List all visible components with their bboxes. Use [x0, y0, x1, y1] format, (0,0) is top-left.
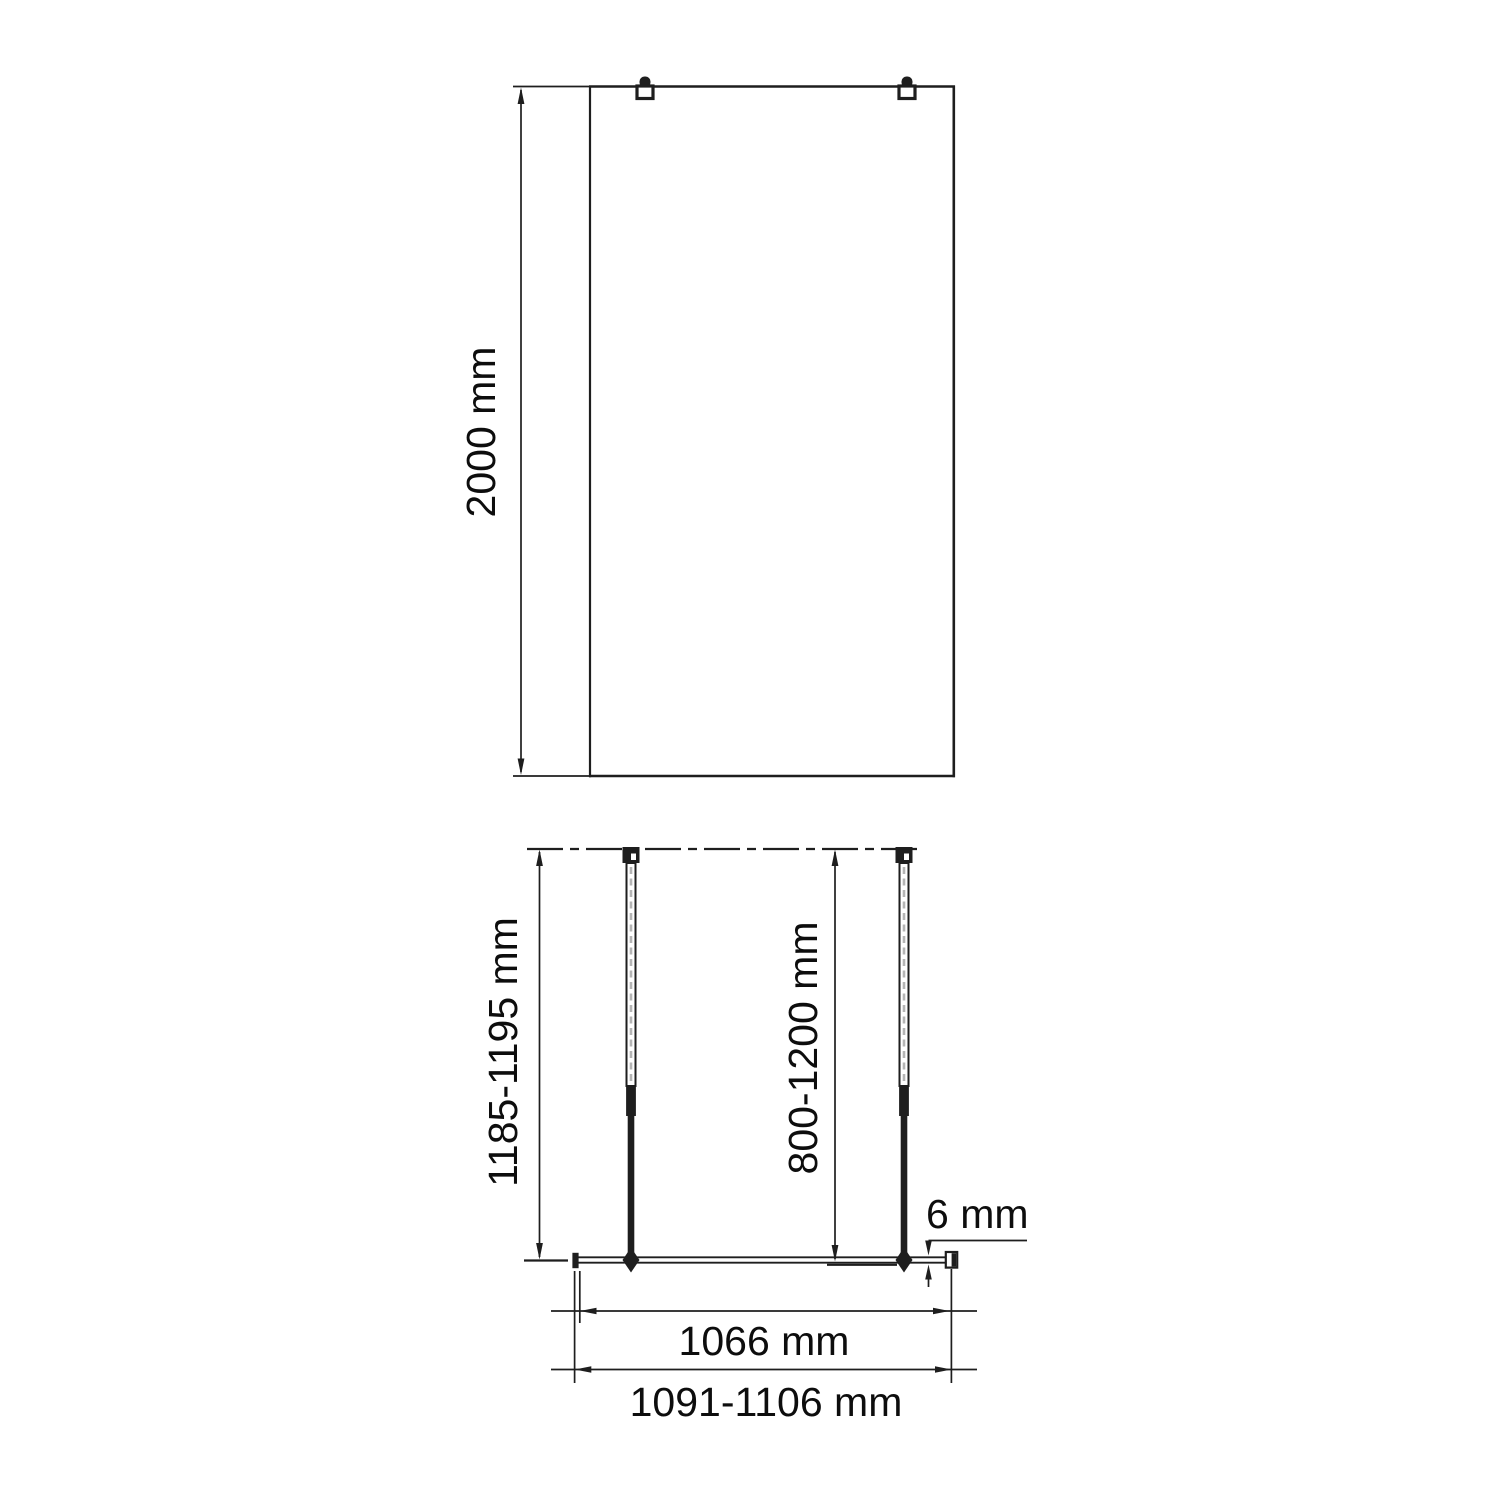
- adjustment-range-label: 800-1200 mm: [780, 922, 826, 1175]
- bracket-notch: [631, 854, 636, 861]
- technical-drawing-page: 2000 mm: [0, 0, 1500, 1500]
- wall-clamp-right: [899, 77, 915, 99]
- drawing-svg: 2000 mm: [0, 0, 1500, 1500]
- height-dimension-label: 2000 mm: [458, 347, 504, 518]
- plan-view: 1185-1195 mm 800-1200 mm 6 mm: [480, 847, 1029, 1425]
- glass-thickness-dimension: 6 mm: [925, 1191, 1028, 1287]
- glass-panel-front-outline: [513, 86, 955, 778]
- overall-width-dimension: 1091-1106 mm: [551, 1366, 977, 1425]
- glass-clamp: [896, 1248, 913, 1273]
- overall-width-label: 1091-1106 mm: [630, 1379, 903, 1425]
- wall-clamp-left: [637, 77, 653, 99]
- arrow-up-icon: [518, 88, 525, 105]
- adjustment-range-dimension: 800-1200 mm: [780, 850, 897, 1265]
- arrow-down-icon: [536, 1243, 543, 1260]
- arrow-down-icon: [832, 1245, 839, 1262]
- bar-projection-dimension: 1185-1195 mm: [480, 850, 568, 1261]
- arrow-down-icon: [518, 759, 525, 776]
- arrow-up-icon: [925, 1265, 932, 1280]
- glass-thickness-label: 6 mm: [926, 1191, 1029, 1237]
- inner-rod: [628, 1116, 635, 1253]
- arrow-up-icon: [832, 850, 839, 867]
- wall-profile-fill: [952, 1253, 956, 1266]
- clamp-body: [899, 86, 915, 99]
- tube-joint: [899, 1086, 909, 1116]
- tube-joint: [626, 1086, 636, 1116]
- arrow-up-icon: [536, 850, 543, 867]
- arrow-right-icon: [933, 1308, 950, 1314]
- glass-end-cap: [572, 1253, 578, 1268]
- glass-clamp: [623, 1248, 640, 1273]
- bar-projection-label: 1185-1195 mm: [480, 917, 526, 1187]
- inner-rod: [901, 1116, 908, 1253]
- arrow-left-icon: [575, 1366, 592, 1372]
- bracket-notch: [904, 854, 909, 861]
- height-dimension: 2000 mm: [458, 88, 524, 776]
- arrow-right-icon: [935, 1366, 951, 1372]
- support-bar-left: [623, 847, 640, 1273]
- support-bar-right: [896, 847, 913, 1273]
- glass-width-label: 1066 mm: [679, 1318, 850, 1364]
- front-view: 2000 mm: [458, 77, 955, 778]
- clamp-body: [637, 86, 653, 99]
- arrow-down-icon: [925, 1241, 932, 1256]
- arrow-left-icon: [580, 1308, 597, 1314]
- glass-width-dimension: 1066 mm: [551, 1308, 977, 1364]
